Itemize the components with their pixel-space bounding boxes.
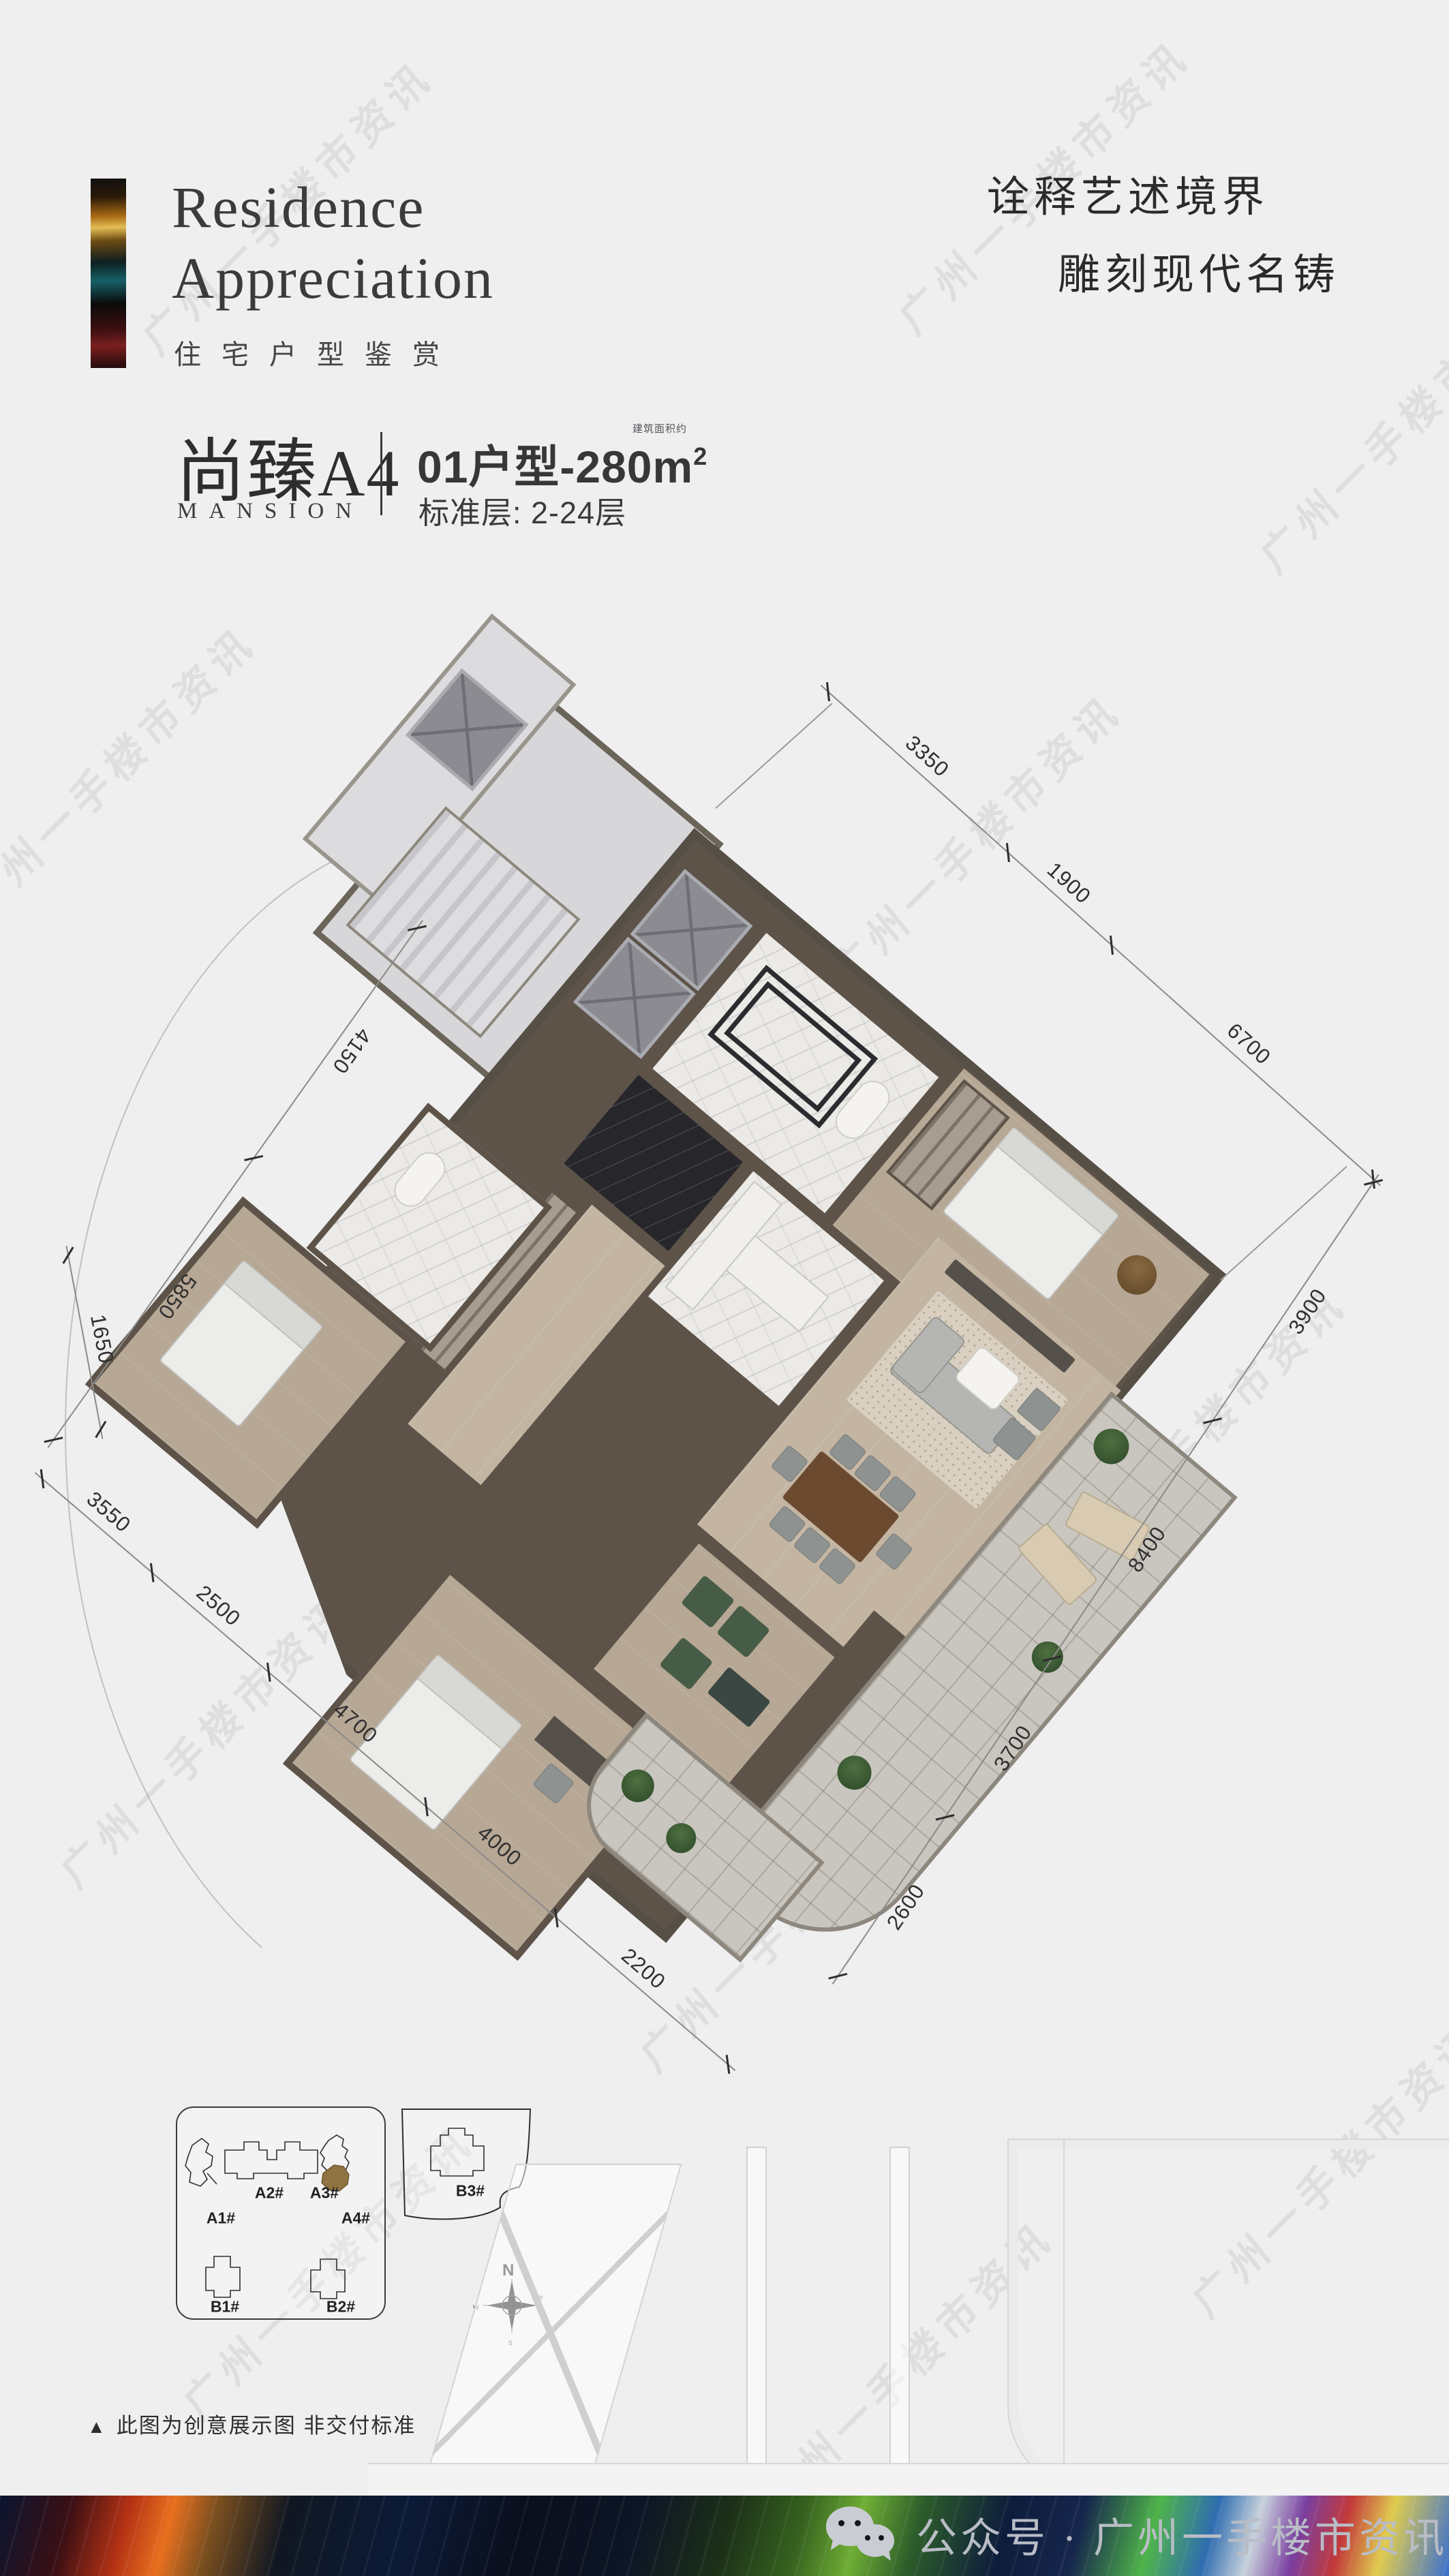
watermark: 广州一手楼市资讯 — [0, 608, 266, 932]
wechat-bubble-small — [856, 2524, 894, 2557]
plant-icon — [1086, 1422, 1136, 1471]
disclaimer: ▲此图为创意展示图 非交付标准 — [87, 2408, 416, 2439]
title-line2: Appreciation — [172, 243, 494, 313]
unit-floors: 标准层: 2-24层 — [418, 488, 626, 532]
plant-icon — [660, 1817, 702, 1859]
title-line1: Residence — [172, 172, 494, 243]
building-label-b1: B1# — [211, 2298, 239, 2316]
dim-label: 3900 — [1283, 1284, 1332, 1339]
glass-pillar — [746, 2147, 767, 2475]
subtitle-cn: 住宅户型鉴赏 — [174, 333, 460, 372]
glass-mullion — [1063, 2140, 1065, 2472]
building-a2-a3-outline — [225, 2142, 318, 2179]
plant-icon — [830, 1749, 878, 1796]
dim-extension-line — [715, 703, 832, 808]
dim-label: 4150 — [327, 1024, 376, 1078]
unit-type-text: 01户型-280m — [417, 442, 693, 492]
dim-label: 2200 — [617, 1944, 671, 1995]
building-label-a2: A2# — [255, 2184, 284, 2203]
bed — [348, 1653, 523, 1832]
building-label-a4: A4# — [341, 2209, 370, 2228]
dim-label: 3350 — [900, 731, 954, 782]
building-label-a3: A3# — [310, 2184, 339, 2203]
plant-icon — [615, 1763, 661, 1809]
glass-pillar — [889, 2147, 910, 2475]
glass-base-band — [368, 2463, 1449, 2500]
building-label-b3: B3# — [456, 2182, 485, 2201]
siteplan-box: A1# A2# A3# A4# B1# B2# — [176, 2106, 386, 2320]
green-chair — [659, 1637, 713, 1691]
area-superscript: 2 — [693, 442, 707, 470]
wechat-icon — [826, 2506, 902, 2566]
building-b1-outline — [206, 2256, 240, 2297]
bathtub — [388, 1146, 453, 1214]
triangle-marker-icon: ▲ — [87, 2417, 107, 2437]
poster-page: { "header": { "title_line1": "Residence"… — [0, 0, 1449, 2576]
dim-label: 1900 — [1042, 857, 1095, 908]
building-label-b2: B2# — [326, 2298, 355, 2316]
unit-name-en: MANSION — [177, 499, 363, 524]
dim-label: 6700 — [1222, 1018, 1275, 1069]
building-label-a1: A1# — [207, 2209, 235, 2228]
wechat-account-label: 公众号 · 广州一手楼市资讯 — [916, 2505, 1448, 2564]
header-divider — [380, 432, 382, 515]
brand-ribbon-logo — [91, 179, 126, 368]
green-chair — [716, 1605, 770, 1659]
area-note: 建筑面积约 — [632, 421, 687, 435]
dim-extension-line — [1219, 1166, 1347, 1281]
slogan-line1: 诠释艺述境界 — [987, 162, 1269, 224]
disclaimer-text: 此图为创意展示图 非交付标准 — [117, 2414, 416, 2438]
slogan-line2: 雕刻现代名铸 — [1058, 240, 1340, 301]
page-title: Residence Appreciation — [172, 172, 494, 313]
unit-type-area: 建筑面积约01户型-280m2 — [417, 431, 707, 496]
round-pouf — [1109, 1247, 1165, 1303]
building-a1-outline — [185, 2138, 213, 2186]
glass-frame — [1009, 2140, 1449, 2494]
study-table — [707, 1667, 770, 1728]
building-b2-outline — [311, 2259, 345, 2299]
watermark: 广州一手楼市资讯 — [1247, 260, 1449, 584]
